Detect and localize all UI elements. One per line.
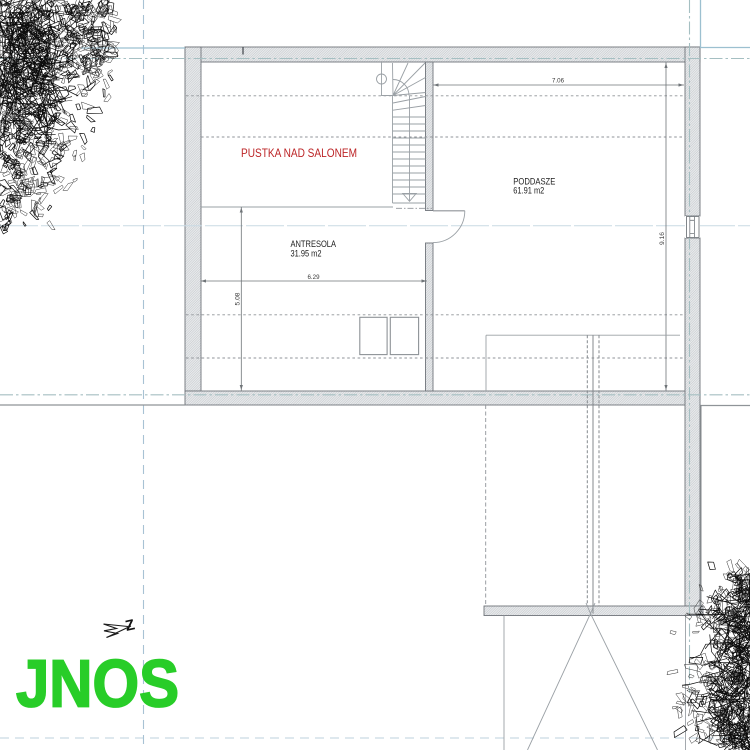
svg-text:PUSTKA NAD SALONEM: PUSTKA NAD SALONEM: [241, 146, 357, 160]
svg-text:31.95 m2: 31.95 m2: [291, 248, 322, 258]
svg-text:JNOS: JNOS: [16, 647, 179, 722]
svg-text:61.91 m2: 61.91 m2: [513, 185, 544, 195]
svg-text:9.16: 9.16: [659, 232, 666, 245]
svg-text:6.29: 6.29: [308, 274, 320, 281]
svg-text:7.06: 7.06: [552, 78, 564, 85]
svg-text:5.08: 5.08: [235, 292, 242, 305]
svg-text:Z: Z: [124, 616, 137, 635]
